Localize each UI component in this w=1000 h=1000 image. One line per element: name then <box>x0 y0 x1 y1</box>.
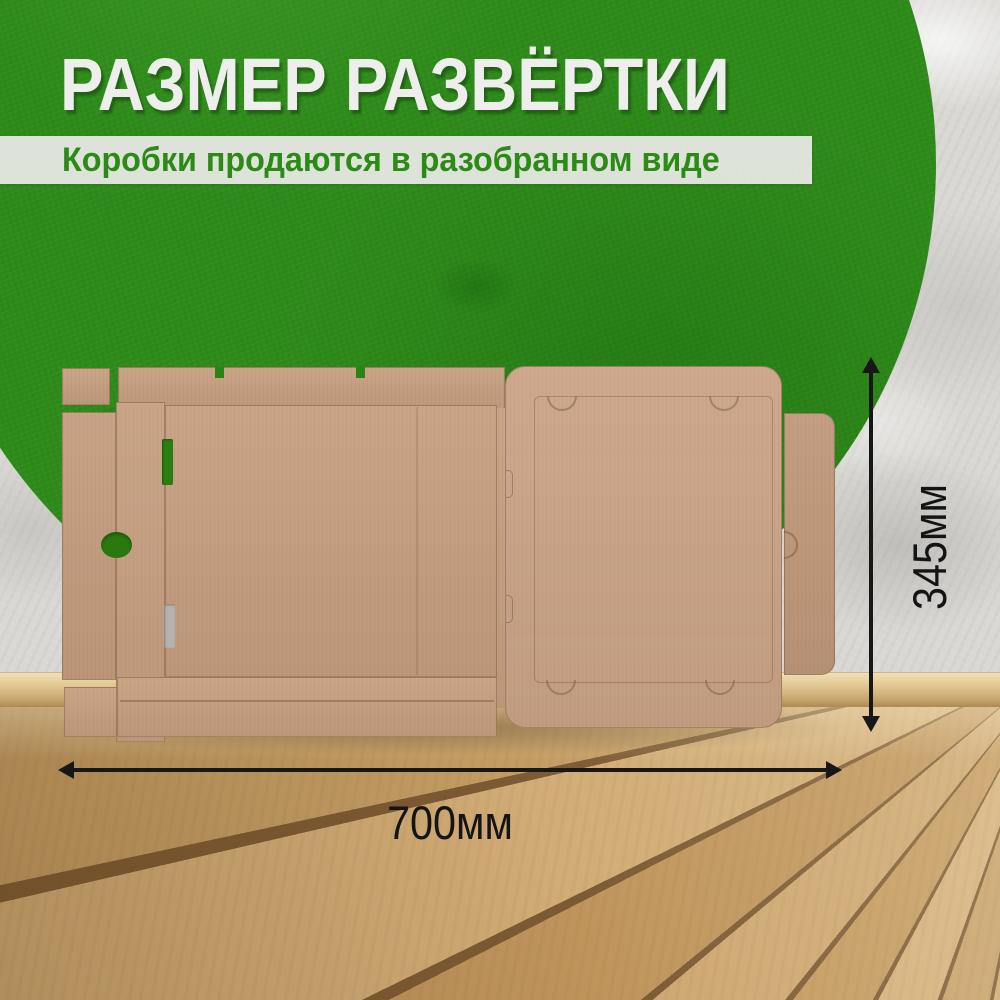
lock-slot-upper <box>162 439 173 485</box>
width-arrow-line <box>72 768 830 772</box>
lid-inner-crease-rect <box>534 396 773 683</box>
top-edge-notch <box>356 367 365 378</box>
width-arrowhead-left <box>58 761 74 779</box>
box-bottom-flap-strip <box>117 677 497 737</box>
base-panel-crease <box>416 407 418 675</box>
subtitle-bar: Коробки продаются в разобранном виде <box>0 136 812 184</box>
height-arrowhead-bottom <box>862 716 880 732</box>
box-top-corner-flap <box>62 368 110 405</box>
bottom-strip-crease <box>120 700 494 702</box>
infographic-scene: РАЗМЕР РАЗВЁРТКИ Коробки продаются в раз… <box>0 0 1000 1000</box>
width-label: 700мм <box>344 798 555 848</box>
box-base-panel <box>165 405 497 677</box>
box-lid-panel <box>505 366 782 728</box>
vent-hole <box>101 532 132 558</box>
lid-tab-cut <box>505 595 513 623</box>
page-title: РАЗМЕР РАЗВЁРТКИ <box>60 40 817 130</box>
box-top-flap-strip <box>118 367 505 410</box>
height-arrowhead-top <box>862 357 880 373</box>
page-subtitle: Коробки продаются в разобранном виде <box>62 136 720 184</box>
box-bottom-corner-flap <box>64 687 117 737</box>
lid-tab-cut <box>505 470 513 498</box>
width-arrowhead-right <box>826 761 842 779</box>
lock-slot-lower <box>164 604 175 648</box>
height-label: 345мм <box>906 472 954 622</box>
top-edge-notch <box>215 367 224 378</box>
height-arrow-line <box>869 370 873 720</box>
lid-die-cut-arc <box>546 680 576 695</box>
lid-die-cut-arc <box>705 680 735 695</box>
